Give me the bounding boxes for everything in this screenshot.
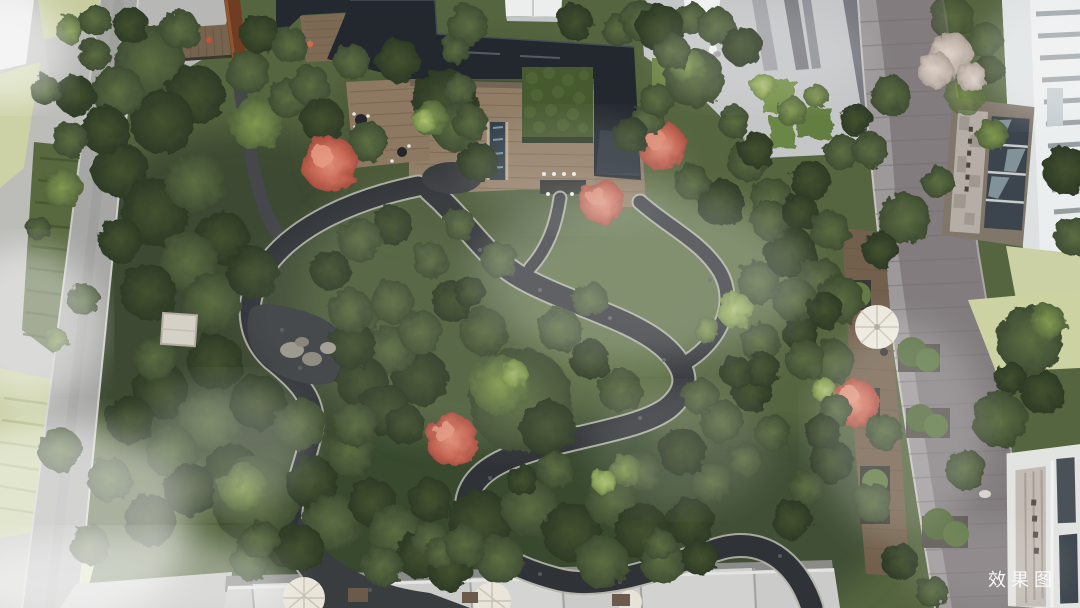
svg-text:效果图: 效果图 <box>988 570 1057 590</box>
